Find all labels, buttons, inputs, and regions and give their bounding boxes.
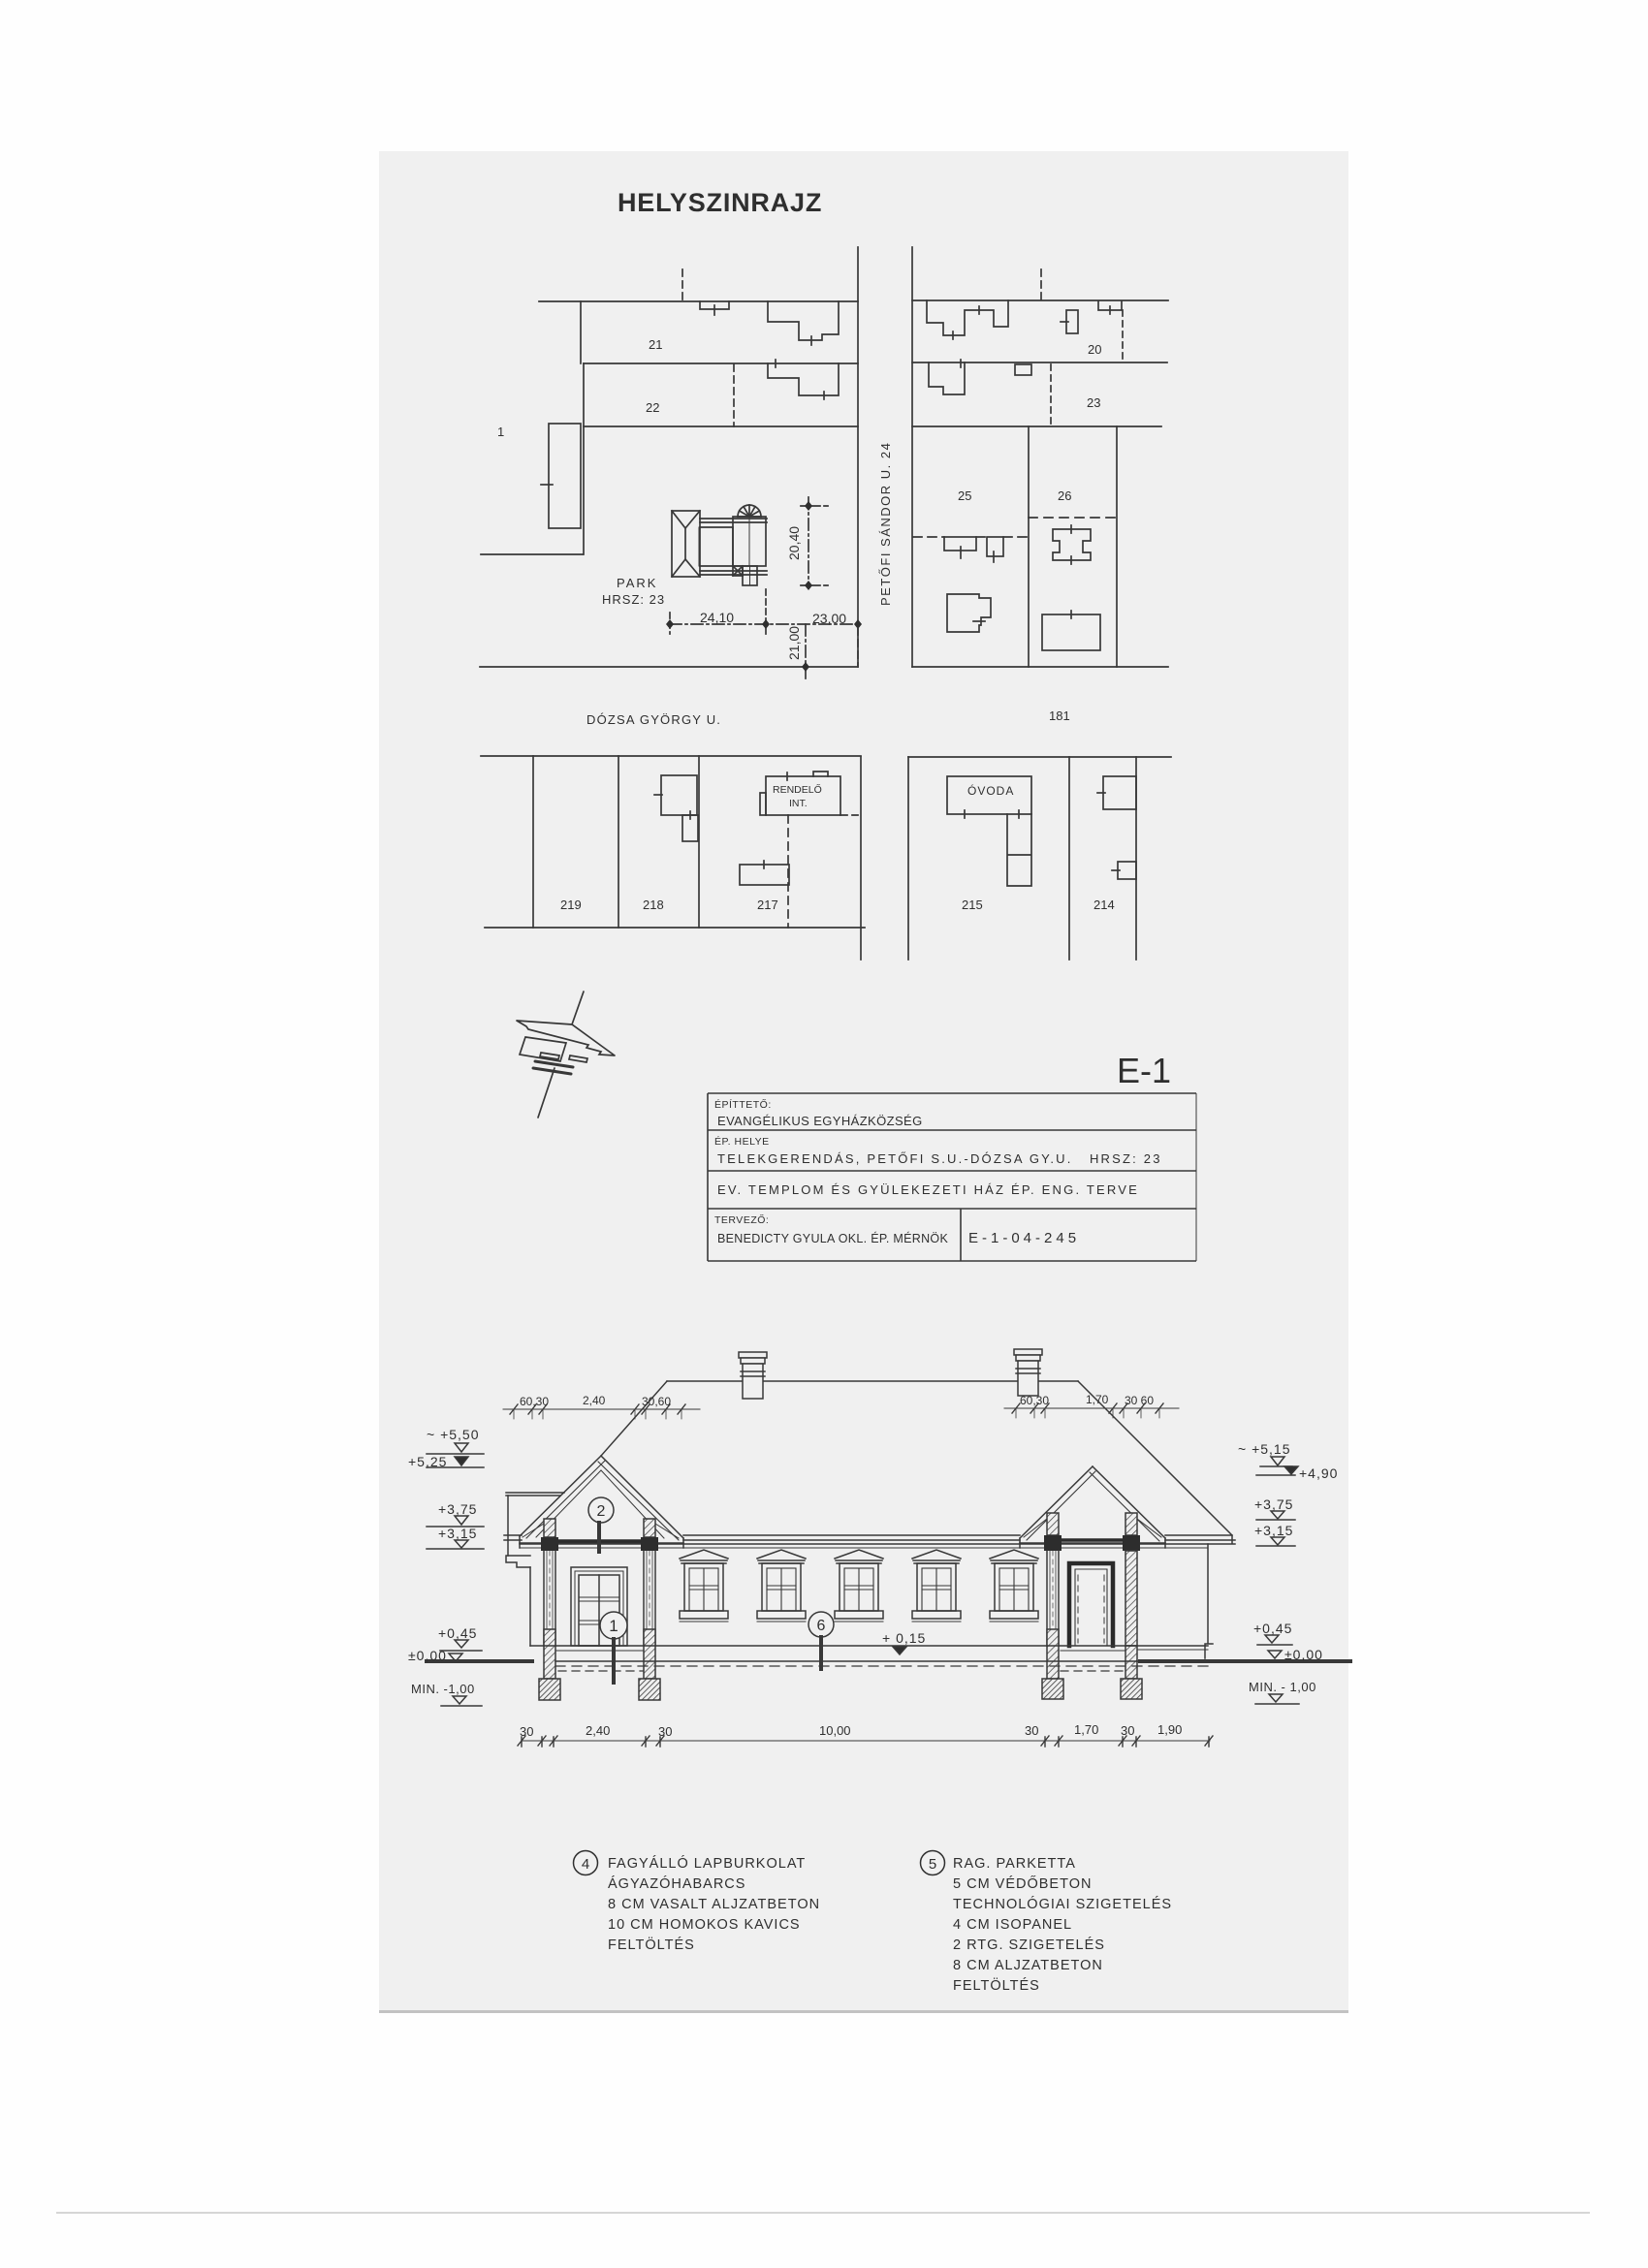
svg-text:215: 215	[962, 898, 983, 912]
svg-text:30: 30	[1025, 1723, 1038, 1738]
svg-text:6: 6	[817, 1618, 826, 1634]
svg-text:MIN. - 1,00: MIN. - 1,00	[1249, 1680, 1316, 1694]
svg-text:219: 219	[560, 898, 582, 912]
svg-text:MIN. -1,00: MIN. -1,00	[411, 1682, 475, 1696]
svg-text:30 60: 30 60	[1125, 1394, 1154, 1407]
svg-text:+3,15: +3,15	[1254, 1523, 1293, 1538]
svg-text:5 CM VÉDŐBETON: 5 CM VÉDŐBETON	[953, 1875, 1092, 1892]
svg-text:RENDELŐ: RENDELŐ	[773, 782, 822, 796]
svg-text:ÉPÍTTETŐ:: ÉPÍTTETŐ:	[714, 1097, 772, 1111]
svg-text:+0,45: +0,45	[438, 1625, 477, 1641]
svg-text:+0,45: +0,45	[1253, 1621, 1292, 1636]
svg-text:EVANGÉLIKUS EGYHÁZKÖZSÉG: EVANGÉLIKUS EGYHÁZKÖZSÉG	[717, 1114, 923, 1128]
svg-text:10,00: 10,00	[819, 1723, 851, 1738]
svg-text:181: 181	[1049, 709, 1070, 723]
svg-text:8 CM ALJZATBETON: 8 CM ALJZATBETON	[953, 1958, 1103, 1973]
svg-text:20,40: 20,40	[786, 526, 802, 560]
svg-text:ÓVODA: ÓVODA	[967, 783, 1014, 798]
svg-text:+4,90: +4,90	[1299, 1465, 1338, 1481]
svg-text:BENEDICTY GYULA OKL. ÉP. MÉRNÖ: BENEDICTY GYULA OKL. ÉP. MÉRNÖK	[717, 1231, 948, 1245]
svg-text:+3,75: +3,75	[1254, 1496, 1293, 1512]
svg-text:~ +5,15: ~ +5,15	[1238, 1441, 1291, 1457]
svg-text:ÉP. HELYE: ÉP. HELYE	[714, 1135, 770, 1148]
svg-text:23: 23	[1087, 395, 1100, 410]
svg-text:217: 217	[757, 898, 778, 912]
svg-text:8 CM VASALT ALJZATBETON: 8 CM VASALT ALJZATBETON	[608, 1897, 820, 1912]
svg-text:214: 214	[1093, 898, 1115, 912]
svg-text:26: 26	[1058, 488, 1071, 503]
svg-text:DÓZSA GYÖRGY U.: DÓZSA GYÖRGY U.	[586, 712, 721, 727]
svg-text:ÁGYAZÓHABARCS: ÁGYAZÓHABARCS	[608, 1875, 745, 1892]
svg-text:30: 30	[1121, 1723, 1134, 1738]
svg-text:2,40: 2,40	[583, 1394, 606, 1407]
svg-text:PARK: PARK	[617, 576, 657, 590]
svg-text:60,30: 60,30	[1020, 1394, 1049, 1407]
svg-text:1,70: 1,70	[1074, 1722, 1098, 1737]
svg-text:23,00: 23,00	[812, 611, 846, 626]
svg-text:E-1-04-245: E-1-04-245	[968, 1230, 1080, 1246]
svg-text:4: 4	[582, 1856, 589, 1873]
svg-text:4 CM ISOPANEL: 4 CM ISOPANEL	[953, 1917, 1072, 1933]
svg-text:HELYSZINRAJZ: HELYSZINRAJZ	[618, 188, 822, 217]
svg-text:1,70: 1,70	[1086, 1393, 1109, 1406]
svg-text:60,30: 60,30	[520, 1395, 549, 1408]
svg-text:+3,15: +3,15	[438, 1526, 477, 1541]
svg-text:2,40: 2,40	[586, 1723, 610, 1738]
svg-text:HRSZ: 23: HRSZ: 23	[602, 592, 665, 607]
svg-text:1: 1	[609, 1617, 618, 1635]
svg-text:±0,00: ±0,00	[1284, 1647, 1323, 1662]
svg-text:~ +5,50: ~ +5,50	[427, 1427, 480, 1442]
svg-text:+3,75: +3,75	[438, 1501, 477, 1517]
svg-text:FELTÖLTÉS: FELTÖLTÉS	[608, 1936, 695, 1953]
svg-text:30,60: 30,60	[642, 1395, 671, 1408]
svg-text:TELEKGERENDÁS, PETŐFI S.U.-DÓZ: TELEKGERENDÁS, PETŐFI S.U.-DÓZSA GY.U. H…	[717, 1151, 1162, 1166]
svg-text:5: 5	[929, 1856, 936, 1873]
svg-text:INT.: INT.	[789, 798, 808, 809]
svg-text:FAGYÁLLÓ LAPBURKOLAT: FAGYÁLLÓ LAPBURKOLAT	[608, 1855, 806, 1872]
svg-text:EV. TEMPLOM ÉS GYÜLEKEZETI HÁZ: EV. TEMPLOM ÉS GYÜLEKEZETI HÁZ ÉP. ENG. …	[717, 1182, 1139, 1197]
svg-text:1,90: 1,90	[1157, 1722, 1182, 1737]
svg-text:25: 25	[958, 488, 971, 503]
svg-text:E-1: E-1	[1117, 1051, 1171, 1090]
svg-text:21: 21	[649, 337, 662, 352]
svg-text:30: 30	[520, 1724, 533, 1739]
svg-text:21,00: 21,00	[786, 626, 802, 660]
svg-text:±0,00: ±0,00	[408, 1648, 447, 1663]
svg-text:RAG. PARKETTA: RAG. PARKETTA	[953, 1856, 1076, 1872]
svg-text:+ 0,15: + 0,15	[882, 1630, 926, 1646]
svg-text:20: 20	[1088, 342, 1101, 357]
svg-text:TERVEZŐ:: TERVEZŐ:	[714, 1213, 769, 1226]
svg-text:TECHNOLÓGIAI SZIGETELÉS: TECHNOLÓGIAI SZIGETELÉS	[953, 1896, 1172, 1912]
svg-text:1: 1	[497, 425, 504, 439]
svg-text:218: 218	[643, 898, 664, 912]
svg-text:30: 30	[658, 1724, 672, 1739]
svg-text:FELTÖLTÉS: FELTÖLTÉS	[953, 1976, 1040, 1994]
svg-text:PETŐFI SÁNDOR U. 24: PETŐFI SÁNDOR U. 24	[878, 442, 893, 606]
svg-text:22: 22	[646, 400, 659, 415]
svg-text:24,10: 24,10	[700, 610, 734, 625]
svg-text:2 RTG. SZIGETELÉS: 2 RTG. SZIGETELÉS	[953, 1937, 1105, 1953]
svg-text:10 CM HOMOKOS KAVICS: 10 CM HOMOKOS KAVICS	[608, 1917, 801, 1933]
svg-text:2: 2	[597, 1503, 606, 1520]
